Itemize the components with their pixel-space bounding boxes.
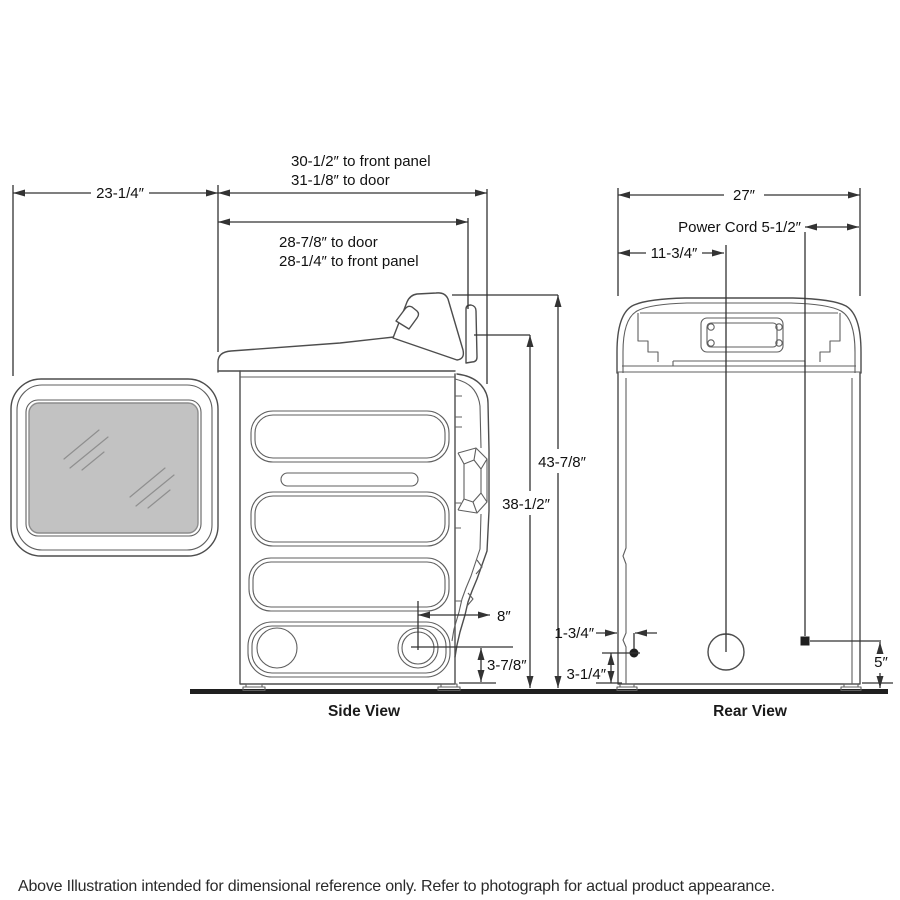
dim-label-gas-line-offset: 1-3/4″ [555, 625, 595, 642]
dim-label-power-cord-height: 5″ [874, 654, 888, 671]
power-cord-marker [801, 637, 810, 646]
dim-label-depth-to-front-panel: 30-1/2″ to front panel [291, 153, 431, 170]
dim-label-depth-to-door: 31-1/8″ to door [291, 172, 390, 189]
dim-rear-width: 27″ [618, 187, 860, 296]
dim-gas-line-height: 3-1/4″ [567, 653, 641, 683]
door-glass [29, 403, 198, 533]
rear-console [617, 298, 861, 373]
dimension-diagram: 23-1/4″ 30-1/2″ to front panel 31-1/8″ t… [0, 0, 900, 900]
dim-label-overall-height: 43-7/8″ [538, 454, 587, 471]
side-view-machine [218, 293, 489, 691]
rear-body-outline [618, 373, 860, 684]
console-end-cap [466, 305, 477, 363]
dim-vent-setback: 8″ [418, 601, 511, 650]
dim-label-door-open-depth: 23-1/4″ [96, 185, 145, 202]
dim-front-panel-height: 38-1/2″ [474, 335, 551, 688]
dim-label-exhaust-offset: 11-3/4″ [651, 245, 698, 262]
open-door-panel [11, 379, 218, 556]
dim-exhaust-offset: 11-3/4″ [618, 245, 726, 652]
dim-label-gas-line-height: 3-1/4″ [567, 666, 607, 683]
dim-power-cord-height: 5″ [862, 642, 893, 688]
dim-label-vent-center-height: 3-7/8″ [487, 657, 527, 674]
left-port-circle [257, 628, 297, 668]
rear-view-caption: Rear View [713, 703, 788, 720]
console-handle-cutout [701, 318, 783, 352]
vent-slot [281, 473, 418, 486]
dim-door-open-depth: 23-1/4″ [13, 185, 218, 376]
top-panel [218, 337, 394, 372]
dim-label-rear-width: 27″ [733, 187, 756, 204]
side-view-caption: Side View [328, 703, 401, 720]
side-body-outline [240, 371, 455, 684]
rear-view-machine [617, 298, 861, 691]
dim-label-front-panel-height: 38-1/2″ [502, 496, 551, 513]
dim-gas-line-offset: 1-3/4″ [555, 625, 658, 649]
dim-label-power-cord: Power Cord 5-1/2″ [678, 219, 802, 236]
appliance-dimension-diagram-page: 23-1/4″ 30-1/2″ to front panel 31-1/8″ t… [0, 0, 900, 900]
dim-label-depth2-to-front-panel: 28-1/4″ to front panel [279, 253, 419, 270]
disclaimer-text: Above Illustration intended for dimensio… [18, 878, 775, 895]
floor-line [190, 689, 888, 694]
dim-label-vent-setback: 8″ [497, 608, 511, 625]
dim-power-cord: Power Cord 5-1/2″ [678, 219, 881, 641]
dim-label-depth2-to-door: 28-7/8″ to door [279, 234, 378, 251]
side-panels [248, 411, 450, 677]
